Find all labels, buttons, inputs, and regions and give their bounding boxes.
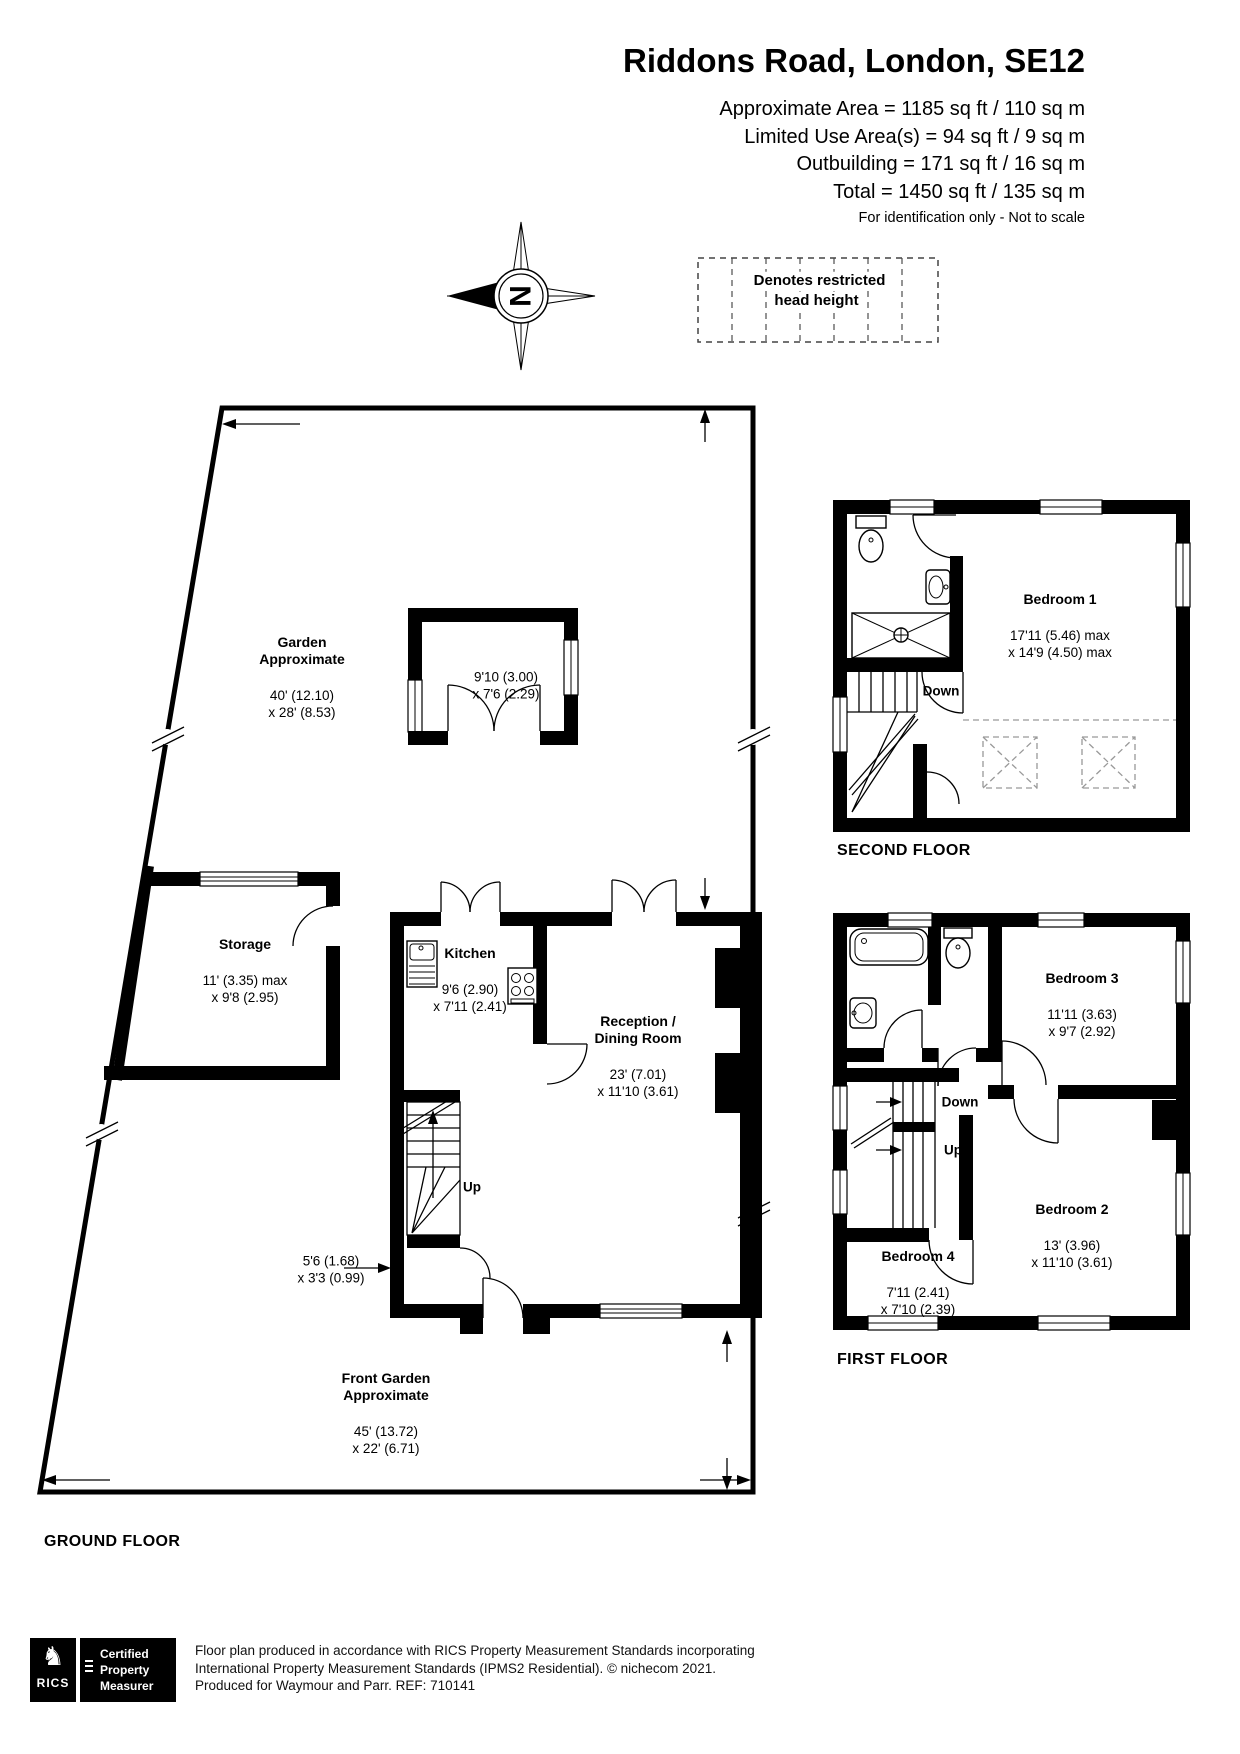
front-garden-name: Front Garden Approximate bbox=[342, 1370, 431, 1405]
bedroom3-label: Bedroom 3 11'11 (3.63) x 9'7 (2.92) bbox=[1045, 950, 1118, 1060]
garden-label: Garden Approximate 40' (12.10) x 28' (8.… bbox=[259, 614, 345, 742]
storage-dims: 11' (3.35) max x 9'8 (2.95) bbox=[203, 973, 288, 1006]
storage-name: Storage bbox=[203, 936, 288, 953]
reception-dims: 23' (7.01) x 11'10 (3.61) bbox=[594, 1068, 681, 1101]
washbasin-icon bbox=[850, 998, 876, 1028]
hall-dims: 5'6 (1.68) x 3'3 (0.99) bbox=[297, 1253, 364, 1286]
compass-icon: N bbox=[447, 222, 595, 370]
bedroom4-dims: 7'11 (2.41) x 7'10 (2.39) bbox=[881, 1285, 956, 1318]
second-floor-title: SECOND FLOOR bbox=[837, 842, 971, 860]
bedroom2-label: Bedroom 2 13' (3.96) x 11'10 (3.61) bbox=[1031, 1181, 1112, 1291]
second-floor-down-label: Down bbox=[923, 684, 960, 699]
outbuilding-label: 9'10 (3.00) x 7'6 (2.29) bbox=[472, 649, 539, 722]
restricted-legend-text: Denotes restricted head height bbox=[751, 272, 886, 309]
floorplan-drawing: N bbox=[0, 0, 1240, 1754]
front-garden-label: Front Garden Approximate 45' (13.72) x 2… bbox=[342, 1350, 431, 1478]
bedroom1-dims: 17'11 (5.46) max x 14'9 (4.50) max bbox=[1008, 628, 1112, 661]
kitchen-name: Kitchen bbox=[433, 945, 507, 962]
badge-stripes-icon bbox=[85, 1660, 93, 1675]
badge-text: Certified Property Measurer bbox=[100, 1646, 153, 1694]
footer-line: Produced for Waymour and Parr. REF: 7101… bbox=[195, 1677, 755, 1695]
bedroom3-dims: 11'11 (3.63) x 9'7 (2.92) bbox=[1045, 1007, 1118, 1040]
toilet-icon bbox=[944, 928, 972, 968]
bedroom4-name: Bedroom 4 bbox=[881, 1248, 956, 1265]
garden-dims: 40' (12.10) x 28' (8.53) bbox=[259, 689, 345, 722]
restricted-area-marks bbox=[963, 720, 1176, 788]
washbasin-icon bbox=[926, 570, 950, 604]
ground-floor-plan bbox=[40, 408, 770, 1492]
first-floor-down-label: Down bbox=[942, 1095, 979, 1110]
floorplan-page: Riddons Road, London, SE12 Approximate A… bbox=[0, 0, 1240, 1754]
storage-label: Storage 11' (3.35) max x 9'8 (2.95) bbox=[203, 916, 288, 1026]
ground-floor-title: GROUND FLOOR bbox=[44, 1533, 180, 1551]
hob-icon bbox=[508, 968, 537, 1004]
rics-logo: ♞ RICS bbox=[30, 1638, 76, 1702]
kitchen-dims: 9'6 (2.90) x 7'11 (2.41) bbox=[433, 982, 507, 1015]
toilet-icon bbox=[856, 516, 886, 562]
first-floor-title: FIRST FLOOR bbox=[837, 1351, 948, 1369]
bedroom2-dims: 13' (3.96) x 11'10 (3.61) bbox=[1031, 1238, 1112, 1271]
footer-text: Floor plan produced in accordance with R… bbox=[195, 1642, 755, 1695]
outbuilding-dims: 9'10 (3.00) x 7'6 (2.29) bbox=[472, 669, 539, 702]
shower-icon bbox=[852, 613, 950, 658]
footer-line: International Property Measurement Stand… bbox=[195, 1660, 755, 1678]
bedroom4-label: Bedroom 4 7'11 (2.41) x 7'10 (2.39) bbox=[881, 1228, 956, 1338]
ground-floor-up-label: Up bbox=[463, 1180, 481, 1195]
front-garden-dims: 45' (13.72) x 22' (6.71) bbox=[342, 1425, 431, 1458]
first-floor-stairs bbox=[851, 1082, 935, 1228]
footer-line: Floor plan produced in accordance with R… bbox=[195, 1642, 755, 1660]
reception-label: Reception / Dining Room 23' (7.01) x 11'… bbox=[594, 993, 681, 1121]
bathtub-icon bbox=[850, 929, 928, 965]
restricted-legend-label: Denotes restricted head height bbox=[751, 271, 886, 312]
reception-name: Reception / Dining Room bbox=[594, 1013, 681, 1048]
bedroom1-label: Bedroom 1 17'11 (5.46) max x 14'9 (4.50)… bbox=[1008, 571, 1112, 681]
hall-dims-label: 5'6 (1.68) x 3'3 (0.99) bbox=[297, 1233, 364, 1306]
bedroom1-name: Bedroom 1 bbox=[1008, 591, 1112, 608]
certified-measurer-badge: Certified Property Measurer bbox=[80, 1638, 176, 1702]
garden-name: Garden Approximate bbox=[259, 634, 345, 669]
compass-north-letter: N bbox=[505, 285, 538, 307]
rics-lion-icon: ♞ bbox=[30, 1638, 76, 1674]
kitchen-label: Kitchen 9'6 (2.90) x 7'11 (2.41) bbox=[433, 925, 507, 1035]
first-floor-up-label: Up bbox=[944, 1143, 962, 1158]
rics-brand-text: RICS bbox=[30, 1676, 76, 1690]
bedroom3-name: Bedroom 3 bbox=[1045, 970, 1118, 987]
bedroom2-name: Bedroom 2 bbox=[1031, 1201, 1112, 1218]
